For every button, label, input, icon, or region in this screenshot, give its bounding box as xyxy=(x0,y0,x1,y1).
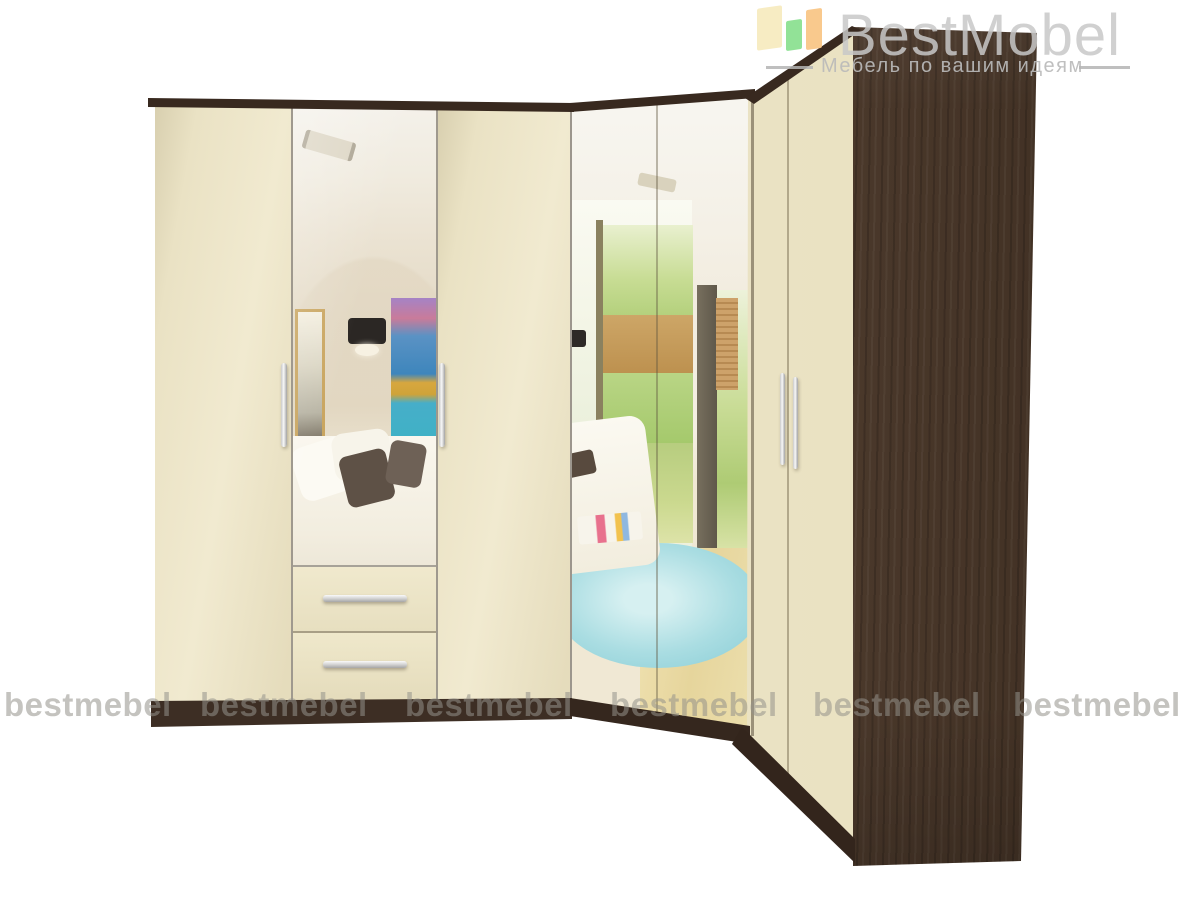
logo-panel-icon xyxy=(786,19,802,51)
watermark-text: bestmebel xyxy=(405,686,573,724)
watermark-text: bestmebel xyxy=(610,686,778,724)
logo-tagline: Мебель по вашим идеям xyxy=(821,55,1084,78)
watermark-text: bestmebel xyxy=(813,686,981,724)
watermark-text: bestmebel xyxy=(4,686,172,724)
logo-panel-icon xyxy=(806,8,822,50)
brand-logo: BestMobel Мебель по вашим идеям xyxy=(0,0,1200,900)
watermark-text: bestmebel xyxy=(200,686,368,724)
tagline-dash-right xyxy=(1079,66,1130,69)
logo-panel-icon xyxy=(757,5,782,51)
watermark-text: bestmebel xyxy=(1013,686,1181,724)
tagline-dash-left xyxy=(766,66,813,69)
product-photo-canvas: BestMobel Мебель по вашим идеям bestmebe… xyxy=(0,0,1200,900)
